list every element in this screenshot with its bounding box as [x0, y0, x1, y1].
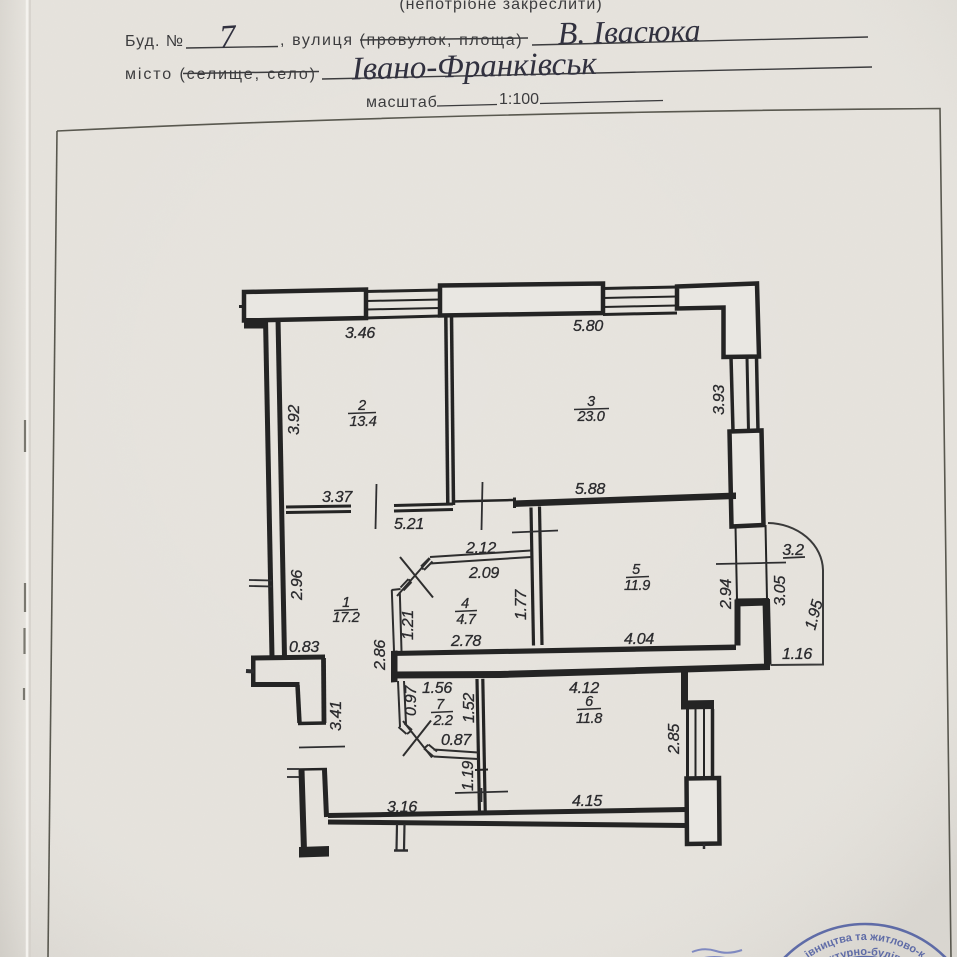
svg-text:3.92: 3.92	[286, 405, 303, 435]
svg-text:5.21: 5.21	[394, 516, 424, 533]
svg-text:4.04: 4.04	[624, 631, 654, 648]
svg-text:7: 7	[436, 697, 445, 713]
svg-text:6: 6	[585, 694, 594, 710]
svg-text:4.15: 4.15	[572, 793, 602, 810]
svg-text:1.77: 1.77	[513, 589, 530, 620]
svg-text:1.21: 1.21	[400, 610, 417, 640]
svg-text:(непотрібне закреслити): (непотрібне закреслити)	[399, 0, 602, 13]
svg-text:2.85: 2.85	[666, 724, 683, 755]
svg-text:1.56: 1.56	[422, 680, 452, 697]
svg-text:3.05: 3.05	[772, 576, 789, 606]
svg-text:5.80: 5.80	[573, 318, 603, 335]
svg-text:5: 5	[632, 562, 641, 578]
svg-text:3.93: 3.93	[711, 385, 728, 415]
svg-text:місто (селище, село): місто (селище, село)	[125, 66, 317, 83]
svg-text:3.41: 3.41	[328, 701, 345, 731]
svg-text:3.37: 3.37	[322, 489, 353, 506]
svg-text:2.2: 2.2	[432, 713, 452, 729]
svg-text:3.2: 3.2	[782, 542, 804, 559]
svg-text:2: 2	[357, 398, 366, 414]
svg-text:11.9: 11.9	[624, 578, 650, 594]
svg-text:4: 4	[461, 596, 469, 612]
svg-text:3: 3	[587, 394, 595, 410]
svg-text:В. Івасюка: В. Івасюка	[557, 12, 701, 51]
svg-text:0.83: 0.83	[289, 639, 319, 656]
svg-text:23.0: 23.0	[576, 409, 604, 425]
svg-text:2.78: 2.78	[450, 633, 481, 650]
svg-text:2.12: 2.12	[465, 540, 496, 557]
svg-text:2.86: 2.86	[372, 640, 389, 671]
svg-text:1: 1	[342, 595, 350, 611]
svg-text:0.87: 0.87	[441, 732, 472, 749]
svg-text:13.4: 13.4	[349, 414, 376, 430]
svg-text:1.19: 1.19	[460, 761, 477, 791]
svg-text:, вулиця (провулок, площа): , вулиця (провулок, площа)	[280, 32, 523, 49]
svg-text:1:100: 1:100	[499, 91, 539, 108]
svg-text:0.97: 0.97	[403, 685, 420, 716]
svg-text:11.8: 11.8	[576, 711, 602, 727]
svg-text:4.7: 4.7	[456, 612, 476, 628]
svg-text:Івано-Франківськ: Івано-Франківськ	[350, 46, 597, 88]
svg-text:1.52: 1.52	[461, 693, 478, 723]
svg-text:масштаб: масштаб	[366, 94, 438, 111]
svg-text:Буд. №: Буд. №	[125, 33, 184, 50]
svg-text:2.96: 2.96	[289, 570, 306, 601]
svg-text:3.46: 3.46	[345, 325, 375, 342]
svg-text:2.94: 2.94	[718, 579, 735, 610]
svg-text:1.16: 1.16	[782, 646, 812, 663]
svg-text:3.16: 3.16	[387, 799, 417, 816]
svg-text:2.09: 2.09	[468, 565, 499, 582]
svg-text:17.2: 17.2	[332, 610, 359, 626]
svg-text:5.88: 5.88	[575, 481, 605, 498]
